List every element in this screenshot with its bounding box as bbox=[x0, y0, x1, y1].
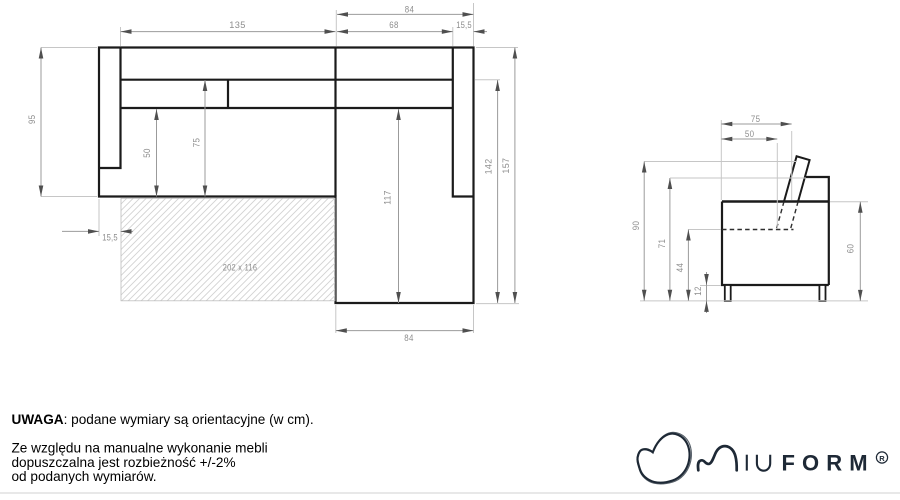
svg-text:60: 60 bbox=[846, 244, 856, 254]
svg-text:95: 95 bbox=[27, 115, 37, 125]
svg-text:202 x 116: 202 x 116 bbox=[223, 263, 258, 273]
svg-text:75: 75 bbox=[192, 138, 202, 148]
svg-text:44: 44 bbox=[675, 263, 685, 273]
svg-text:117: 117 bbox=[383, 190, 393, 205]
svg-text:15,5: 15,5 bbox=[456, 20, 472, 30]
svg-text:FORM: FORM bbox=[782, 451, 875, 476]
svg-text:142: 142 bbox=[484, 158, 494, 174]
svg-text:84: 84 bbox=[404, 333, 414, 343]
svg-text:71: 71 bbox=[657, 239, 667, 249]
svg-text:15,5: 15,5 bbox=[102, 233, 118, 243]
svg-text:od podanych wymiarów.: od podanych wymiarów. bbox=[12, 469, 157, 484]
svg-text:68: 68 bbox=[389, 20, 399, 30]
svg-text:Ze względu na manualne wykonan: Ze względu na manualne wykonanie mebli bbox=[12, 440, 268, 455]
svg-text:90: 90 bbox=[631, 221, 641, 231]
svg-text:R: R bbox=[879, 454, 885, 463]
svg-text:UWAGA: podane wymiary są orien: UWAGA: podane wymiary są orientacyjne (w… bbox=[12, 412, 314, 427]
svg-text:12: 12 bbox=[693, 286, 703, 296]
svg-text:50: 50 bbox=[745, 129, 755, 139]
svg-text:135: 135 bbox=[229, 20, 246, 30]
svg-text:dopuszczalna jest rozbieżność: dopuszczalna jest rozbieżność +/-2% bbox=[12, 455, 236, 470]
svg-text:84: 84 bbox=[405, 5, 415, 15]
svg-text:50: 50 bbox=[142, 148, 152, 158]
svg-text:157: 157 bbox=[501, 158, 511, 174]
svg-text:75: 75 bbox=[751, 114, 761, 124]
